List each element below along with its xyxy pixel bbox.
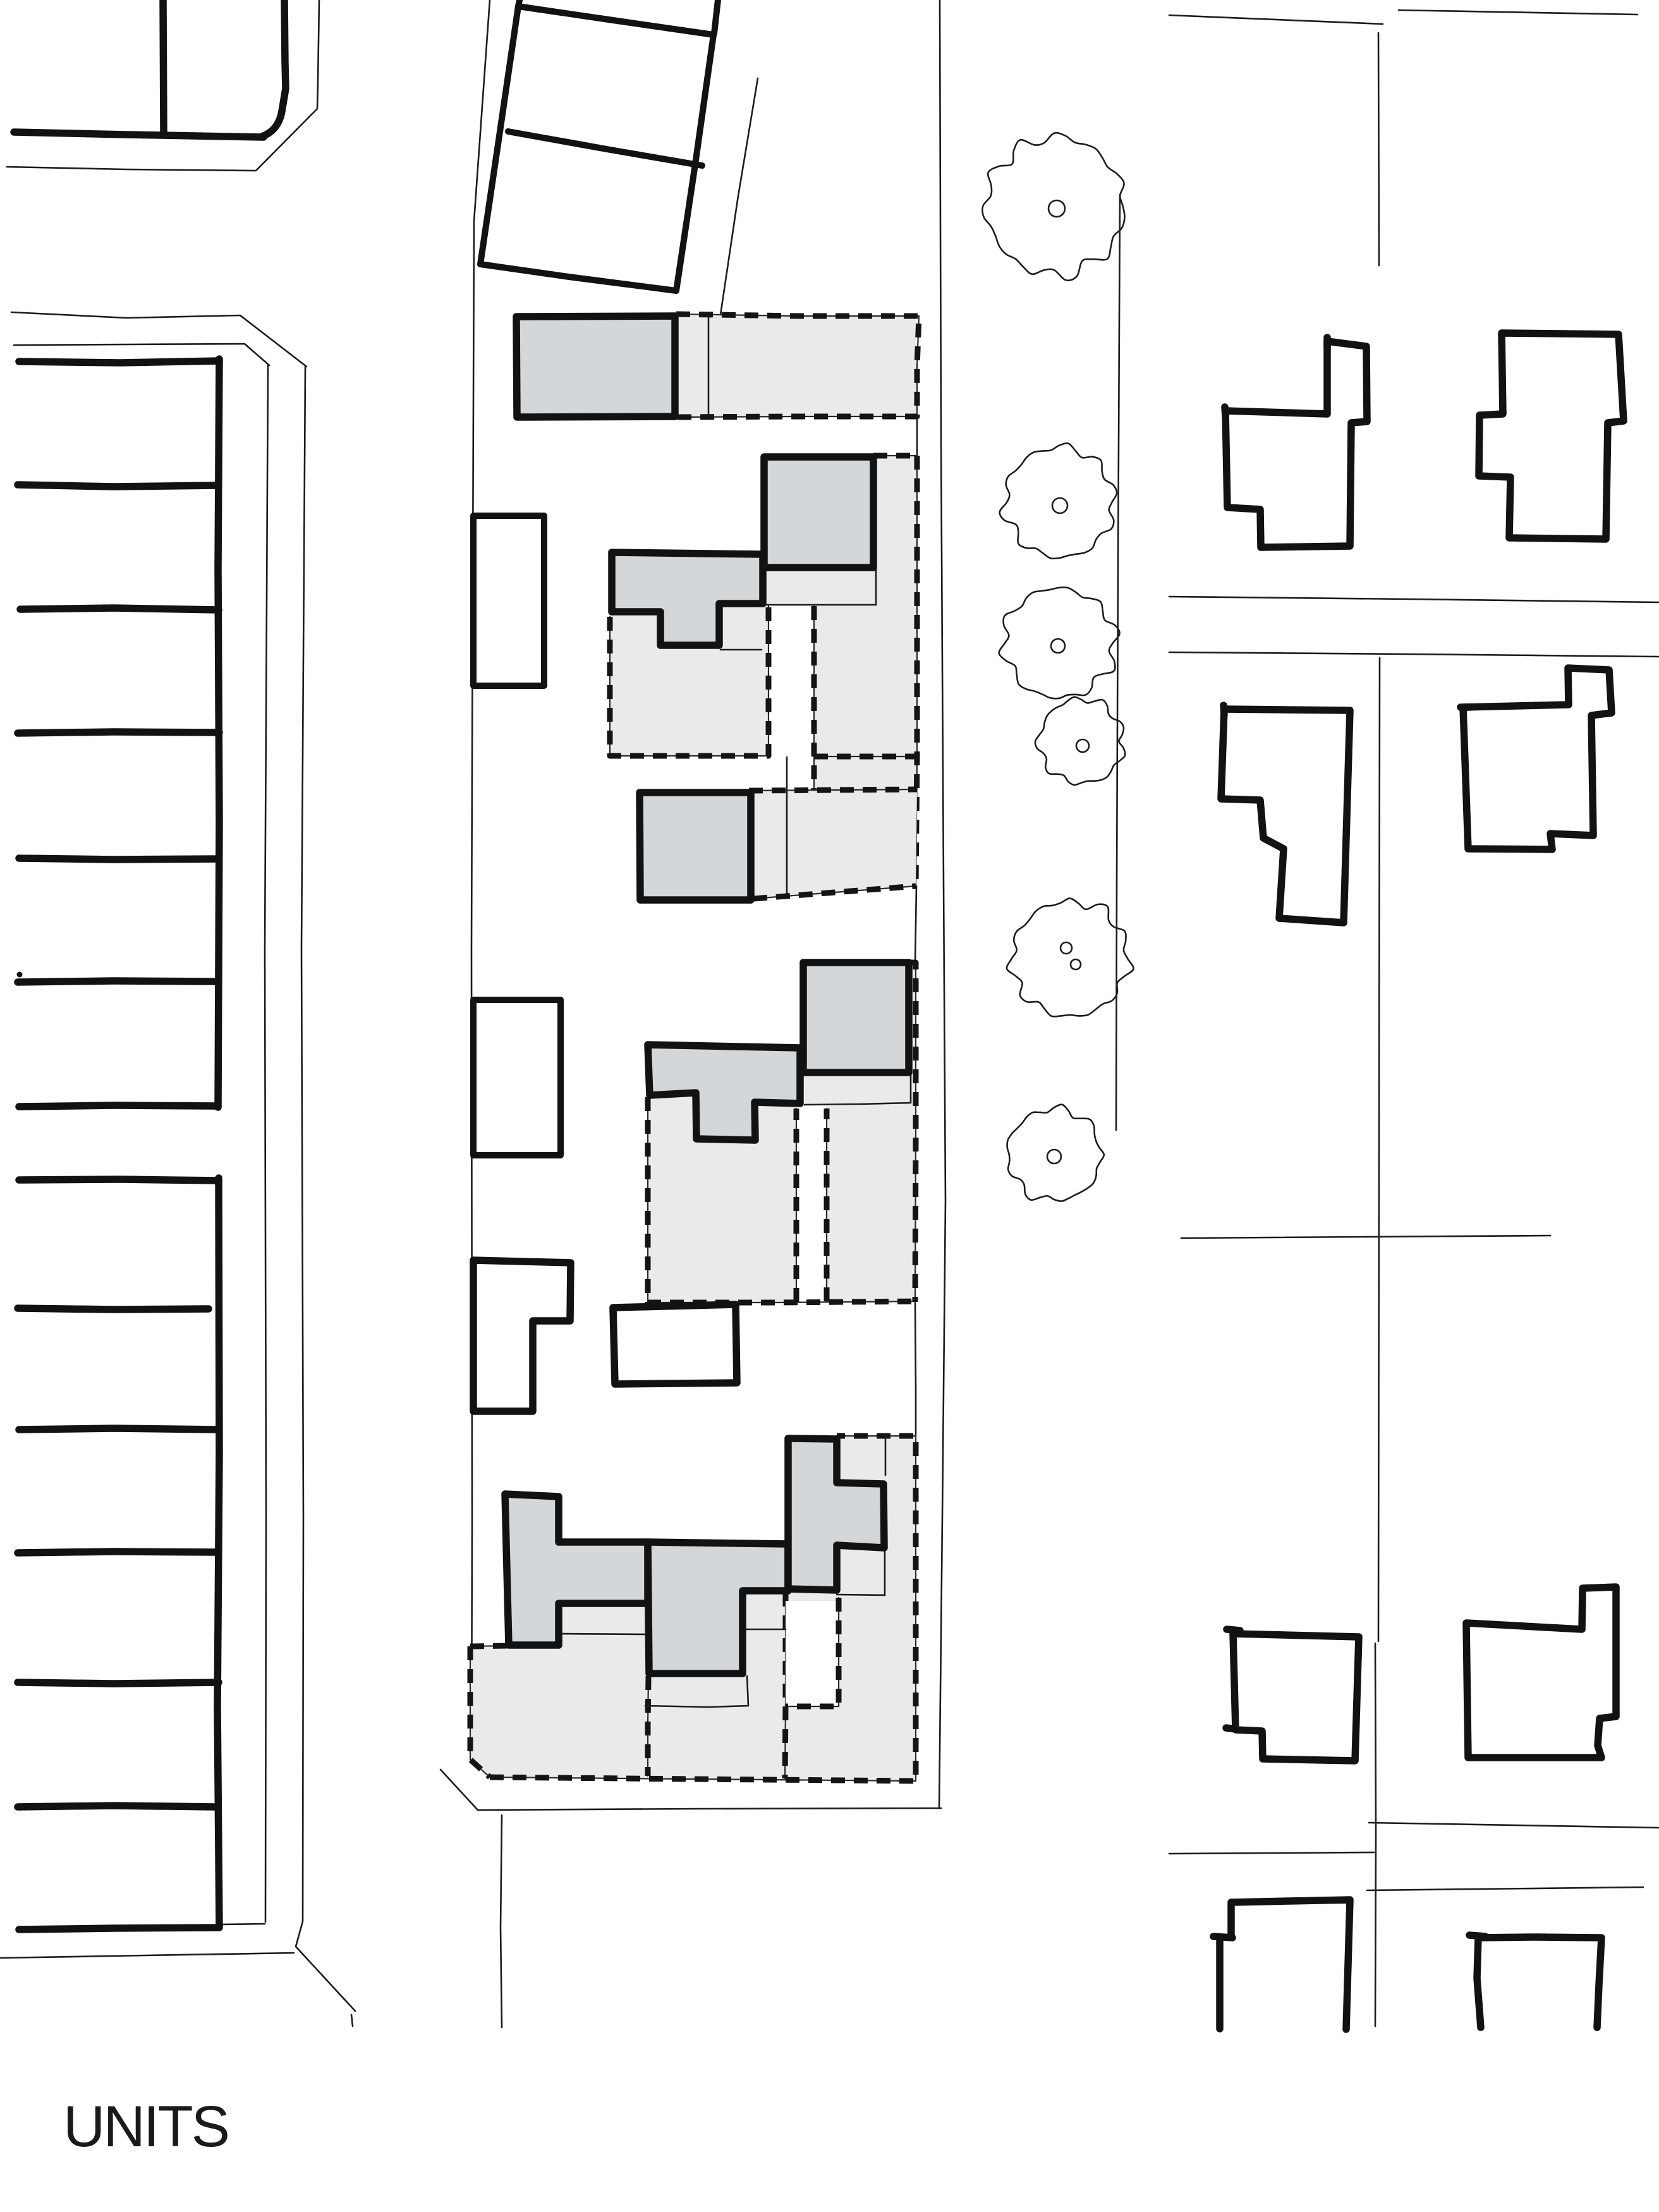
svg-text:UNITS: UNITS: [63, 2094, 228, 2159]
